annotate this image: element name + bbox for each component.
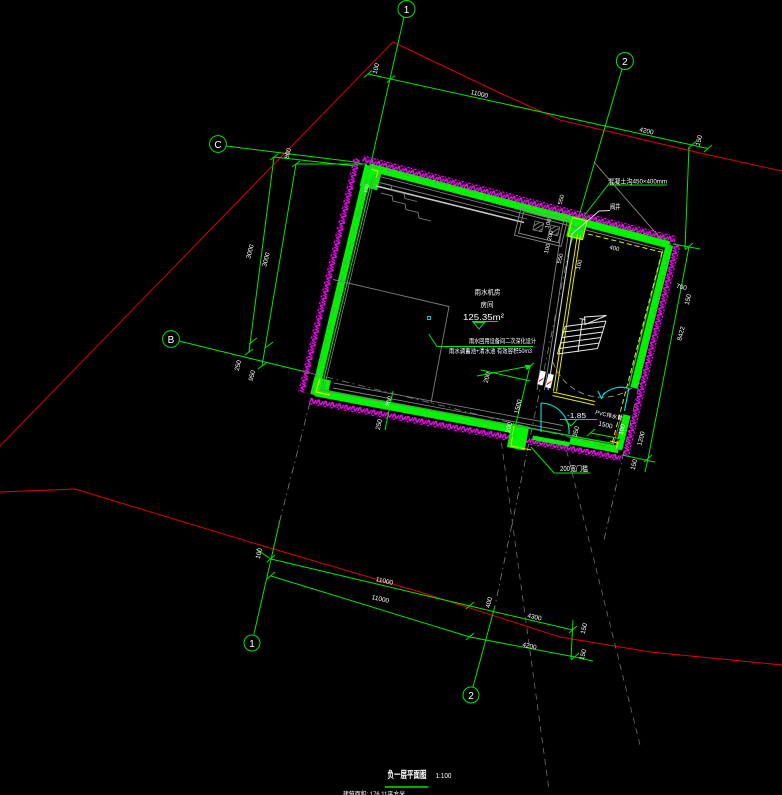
svg-text:雨水机房: 雨水机房 <box>475 288 501 297</box>
svg-text:阀井: 阀井 <box>610 202 621 211</box>
svg-text:B: B <box>168 335 175 346</box>
svg-text:1: 1 <box>249 639 255 650</box>
svg-text:混凝土沟450×400mm: 混凝土沟450×400mm <box>608 177 667 186</box>
svg-text:雨水回用设备间二次深化设计: 雨水回用设备间二次深化设计 <box>469 336 536 345</box>
svg-text:房间: 房间 <box>481 300 494 309</box>
svg-text:C: C <box>214 140 221 151</box>
svg-text:负一层平面图: 负一层平面图 <box>388 769 427 781</box>
svg-text:-1.85: -1.85 <box>567 413 586 420</box>
svg-text:125.35m²: 125.35m² <box>463 312 504 322</box>
svg-text:雨水调蓄池+清水池 有效容积50m3: 雨水调蓄池+清水池 有效容积50m3 <box>449 346 532 355</box>
svg-text:2: 2 <box>622 57 628 68</box>
svg-text:1:100: 1:100 <box>436 773 452 780</box>
svg-text:1: 1 <box>404 5 410 16</box>
svg-text:200宽门槛: 200宽门槛 <box>560 464 588 473</box>
svg-text:2: 2 <box>468 691 474 702</box>
